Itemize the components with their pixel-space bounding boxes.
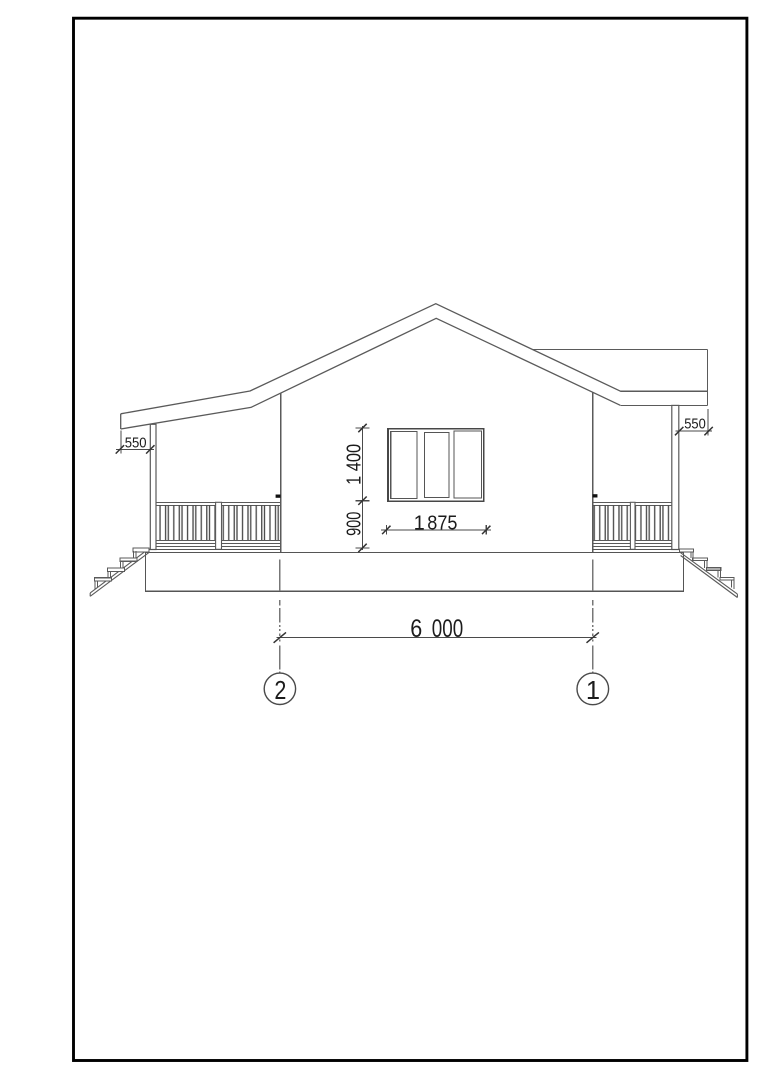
- svg-text:1: 1: [586, 677, 600, 705]
- svg-text:000: 000: [432, 615, 463, 643]
- svg-text:550: 550: [684, 417, 706, 433]
- svg-text:550: 550: [125, 435, 147, 451]
- svg-text:900: 900: [344, 512, 366, 536]
- svg-text:875: 875: [427, 512, 457, 534]
- svg-text:6: 6: [410, 615, 422, 643]
- svg-text:1: 1: [414, 512, 425, 534]
- svg-text:2: 2: [274, 677, 286, 705]
- svg-text:1 400: 1 400: [344, 444, 366, 485]
